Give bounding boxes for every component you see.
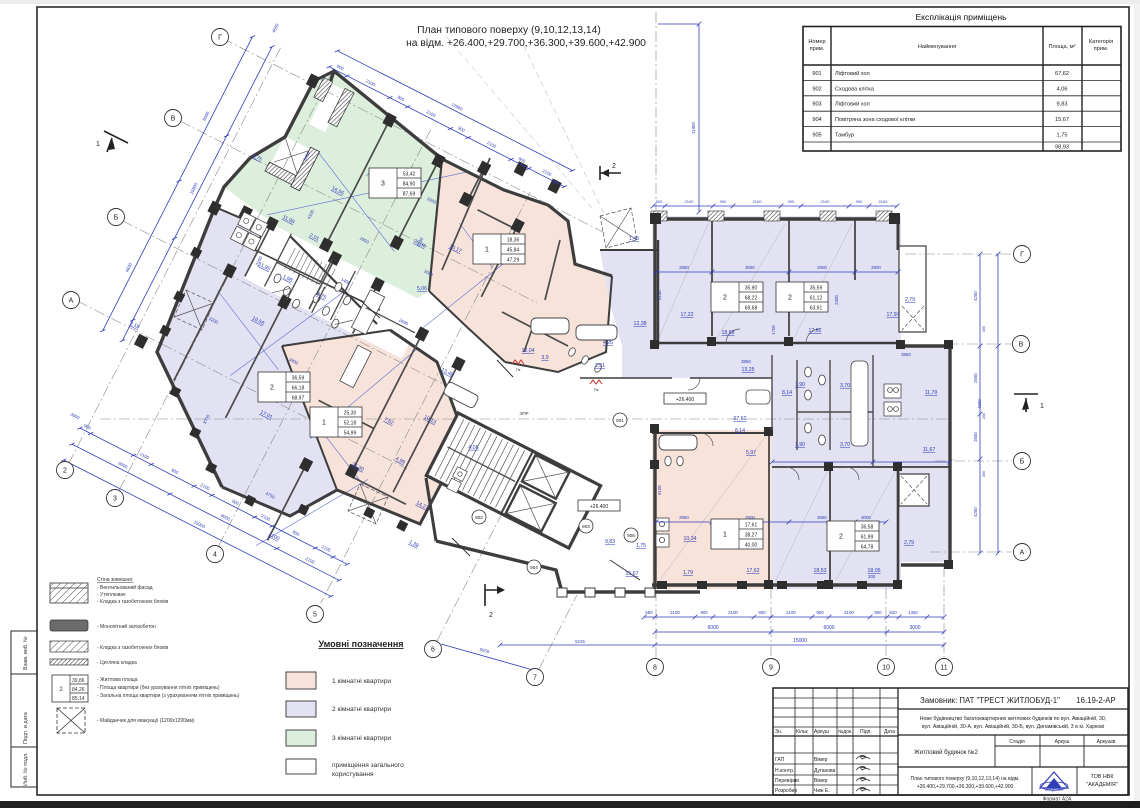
svg-text:3050: 3050 (817, 515, 827, 520)
svg-text:Аркуш: Аркуш (1055, 739, 1070, 745)
svg-text:1: 1 (485, 247, 489, 254)
svg-text:2900: 2900 (817, 265, 827, 270)
svg-text:3,70: 3,70 (840, 442, 850, 448)
svg-text:Б: Б (114, 215, 119, 222)
svg-text:Розробив: Розробив (775, 788, 797, 794)
svg-text:В: В (171, 116, 176, 123)
svg-text:10: 10 (882, 665, 890, 672)
svg-text:903: 903 (582, 524, 590, 529)
svg-text:План типового поверху (9,10,12: План типового поверху (9,10,12,13,14) (417, 25, 601, 36)
svg-text:1450: 1450 (908, 610, 918, 615)
svg-text:- Площа квартири (без урахуван: - Площа квартири (без урахування літніх … (97, 685, 220, 691)
svg-text:11,67: 11,67 (923, 447, 936, 453)
svg-text:35,90: 35,90 (745, 286, 758, 292)
svg-text:+26.400: +26.400 (676, 397, 694, 403)
svg-text:900: 900 (788, 199, 795, 204)
svg-text:2: 2 (612, 163, 616, 170)
svg-text:9,83: 9,83 (1057, 102, 1068, 108)
svg-text:9,83: 9,83 (605, 539, 615, 545)
svg-text:84,90: 84,90 (403, 182, 416, 188)
svg-text:84,26: 84,26 (72, 687, 85, 693)
svg-text:1,90: 1,90 (795, 442, 805, 448)
svg-text:Житловий будинок №2: Житловий будинок №2 (914, 749, 978, 756)
svg-text:3 кімнатні квартири: 3 кімнатні квартири (332, 734, 391, 742)
svg-text:Повітряна зона сходової клітки: Повітряна зона сходової клітки (835, 117, 915, 123)
svg-text:300: 300 (982, 326, 986, 332)
svg-text:3: 3 (113, 496, 117, 503)
svg-text:8,14: 8,14 (782, 390, 792, 396)
svg-text:900: 900 (874, 610, 882, 615)
svg-text:69,68: 69,68 (745, 306, 758, 312)
svg-text:2100: 2100 (670, 610, 680, 615)
svg-text:11,79: 11,79 (925, 390, 938, 396)
svg-text:7: 7 (533, 675, 537, 682)
svg-text:2100: 2100 (753, 199, 763, 204)
svg-text:1,75: 1,75 (1057, 133, 1068, 139)
svg-text:61,12: 61,12 (810, 296, 823, 302)
svg-text:+26.400,+29.700,+36.300,+39.60: +26.400,+29.700,+36.300,+39.600,+42.900 (917, 784, 1014, 790)
svg-text:64,78: 64,78 (861, 545, 874, 551)
svg-text:905: 905 (812, 133, 821, 139)
svg-text:18,36: 18,36 (507, 238, 520, 244)
svg-text:36,58: 36,58 (861, 525, 874, 531)
svg-text:54,99: 54,99 (344, 431, 357, 437)
svg-text:200: 200 (982, 413, 986, 419)
svg-text:40,00: 40,00 (745, 543, 758, 549)
svg-text:5: 5 (313, 612, 317, 619)
svg-text:18,68: 18,68 (722, 330, 735, 336)
svg-text:900: 900 (856, 199, 863, 204)
svg-text:Умовні позначення: Умовні позначення (318, 639, 403, 649)
svg-text:2100: 2100 (879, 199, 889, 204)
svg-text:9: 9 (769, 665, 773, 672)
svg-text:4,26: 4,26 (603, 340, 613, 346)
svg-text:Тамбур: Тамбур (835, 133, 854, 139)
svg-text:3850: 3850 (901, 352, 911, 357)
svg-text:3000: 3000 (861, 515, 871, 520)
svg-text:85,14: 85,14 (72, 696, 85, 702)
svg-text:905: 905 (627, 533, 635, 538)
svg-text:2100: 2100 (786, 610, 796, 615)
svg-text:Сходова клітка: Сходова клітка (835, 86, 875, 92)
svg-text:2: 2 (839, 534, 843, 541)
svg-text:Вімер: Вімер (814, 757, 828, 763)
svg-text:61,99: 61,99 (861, 535, 874, 541)
svg-text:вул. Авіаційній, 30-А, вул. Ав: вул. Авіаційній, 30-А, вул. Авіаційній, … (922, 723, 1104, 730)
svg-text:- Монолітний залізобетон: - Монолітний залізобетон (97, 623, 156, 630)
svg-text:87,69: 87,69 (403, 192, 416, 198)
svg-text:1: 1 (322, 420, 326, 427)
svg-text:902: 902 (475, 515, 483, 520)
svg-text:Нове будівництво багатоквартир: Нове будівництво багатоквартирних житлов… (920, 715, 1107, 722)
svg-text:3,70: 3,70 (840, 383, 850, 389)
svg-text:Аркуш: Аркуш (814, 729, 829, 735)
svg-text:620: 620 (889, 610, 897, 615)
svg-text:900: 900 (720, 199, 727, 204)
svg-text:ТОВ НВК: ТОВ НВК (1091, 774, 1115, 780)
svg-text:- Утеплювач: - Утеплювач (97, 592, 126, 598)
svg-text:6100: 6100 (657, 485, 662, 495)
svg-text:Найменування: Найменування (918, 43, 956, 50)
svg-text:5,06: 5,06 (417, 286, 427, 292)
svg-text:2,79: 2,79 (905, 297, 915, 303)
svg-text:Дуганова: Дуганова (814, 768, 836, 774)
svg-text:1: 1 (96, 141, 100, 148)
svg-text:Подп. и дата: Подп. и дата (23, 712, 29, 744)
svg-text:1: 1 (1040, 403, 1044, 410)
svg-text:А: А (1020, 550, 1025, 557)
svg-text:8: 8 (653, 665, 657, 672)
svg-text:5,97: 5,97 (746, 450, 756, 456)
svg-text:"АКАДЕМІЯ": "АКАДЕМІЯ" (1086, 782, 1118, 788)
svg-text:47,29: 47,29 (507, 258, 520, 264)
svg-text:18,53: 18,53 (814, 568, 827, 574)
svg-text:3000: 3000 (909, 625, 920, 631)
svg-text:Аркушів: Аркушів (1097, 739, 1116, 745)
svg-text:17,62: 17,62 (747, 568, 760, 574)
svg-text:53,42: 53,42 (403, 172, 416, 178)
svg-text:2650: 2650 (973, 432, 978, 442)
svg-text:1: 1 (723, 532, 727, 539)
svg-text:904: 904 (812, 117, 821, 123)
svg-text:2: 2 (489, 612, 493, 619)
svg-text:Перевірив: Перевірив (775, 778, 799, 784)
svg-text:4: 4 (213, 552, 217, 559)
svg-text:- Цегляна кладка: - Цегляна кладка (97, 660, 137, 666)
svg-text:- Кладка з газобетонних блоків: - Кладка з газобетонних блоків (97, 645, 169, 651)
svg-text:67,62: 67,62 (734, 416, 747, 422)
svg-text:38,27: 38,27 (745, 533, 758, 539)
svg-text:18,05: 18,05 (868, 568, 881, 574)
svg-text:8,14: 8,14 (735, 428, 745, 434)
svg-text:на відм. +26.400,+29.700,+36.3: на відм. +26.400,+29.700,+36.300,+39.600… (406, 38, 646, 49)
svg-text:45,84: 45,84 (507, 248, 520, 254)
svg-text:2300: 2300 (834, 295, 839, 305)
svg-text:900: 900 (816, 610, 824, 615)
svg-text:4,06: 4,06 (468, 445, 478, 451)
svg-text:12,04: 12,04 (522, 348, 535, 354)
svg-text:25,30: 25,30 (344, 411, 357, 417)
svg-text:63,91: 63,91 (810, 306, 823, 312)
svg-text:приміщення загального: приміщення загального (332, 761, 404, 769)
svg-text:35,59: 35,59 (810, 286, 823, 292)
svg-text:Ліфтовий хол: Ліфтовий хол (835, 101, 870, 108)
svg-text:36,59: 36,59 (292, 376, 305, 382)
svg-text:- Кладка з газобетонних блоків: - Кладка з газобетонних блоків (97, 599, 169, 605)
svg-text:2950: 2950 (679, 515, 689, 520)
svg-text:2: 2 (788, 295, 792, 302)
svg-text:Стіна зовнішня:: Стіна зовнішня: (97, 577, 133, 583)
svg-text:68,97: 68,97 (292, 396, 305, 402)
svg-text:2: 2 (63, 468, 67, 475)
svg-text:6000: 6000 (823, 625, 834, 631)
svg-text:5215: 5215 (575, 639, 585, 644)
svg-text:2100: 2100 (685, 199, 695, 204)
svg-text:користування: користування (332, 771, 374, 778)
svg-text:2,79: 2,79 (904, 540, 914, 546)
svg-text:Кільк: Кільк (796, 729, 809, 735)
svg-text:План типового поверху (9,10,12: План типового поверху (9,10,12,13,14) на… (910, 776, 1019, 782)
svg-text:300: 300 (982, 471, 986, 477)
svg-text:17,61: 17,61 (745, 523, 758, 529)
svg-text:17,62: 17,62 (809, 328, 822, 334)
svg-text:ЭПР: ЭПР (519, 411, 528, 416)
svg-text:4250: 4250 (973, 291, 978, 301)
svg-text:15,67: 15,67 (626, 571, 639, 577)
svg-text:2850: 2850 (679, 265, 689, 270)
svg-text:3850: 3850 (741, 359, 751, 364)
svg-text:16.19-2-АР: 16.19-2-АР (1076, 696, 1115, 705)
svg-text:4800: 4800 (977, 399, 982, 409)
svg-text:4,06: 4,06 (1057, 86, 1068, 92)
svg-text:Номер: Номер (808, 39, 825, 45)
svg-text:1,46: 1,46 (629, 236, 639, 242)
svg-text:15000: 15000 (793, 638, 807, 644)
svg-text:2,51: 2,51 (595, 363, 605, 369)
svg-text:Зн.: Зн. (775, 729, 782, 735)
svg-text:Г: Г (218, 35, 222, 42)
svg-text:900: 900 (656, 199, 663, 204)
svg-text:3,9: 3,9 (541, 355, 548, 361)
svg-text:Б: Б (1020, 459, 1025, 466)
svg-text:Н.контр.: Н.контр. (775, 768, 794, 774)
svg-text:900: 900 (700, 610, 708, 615)
svg-text:1 кімнатні квартири: 1 кімнатні квартири (332, 677, 391, 685)
svg-text:903: 903 (812, 102, 821, 108)
svg-text:2100: 2100 (821, 199, 831, 204)
svg-text:Формат А2А: Формат А2А (1043, 797, 1072, 803)
svg-text:39,86: 39,86 (72, 678, 85, 684)
svg-text:901: 901 (812, 71, 821, 77)
svg-text:2650: 2650 (973, 373, 978, 383)
svg-text:прим.: прим. (1094, 46, 1109, 52)
svg-text:67,62: 67,62 (1055, 71, 1069, 77)
svg-text:Пк: Пк (516, 367, 521, 372)
svg-text:15,67: 15,67 (1055, 117, 1069, 123)
svg-text:11: 11 (940, 665, 947, 672)
svg-text:Дата: Дата (884, 729, 895, 735)
svg-text:Категорія: Категорія (1089, 39, 1113, 45)
svg-text:В: В (1019, 342, 1024, 349)
svg-text:Площа, м²: Площа, м² (1049, 44, 1076, 50)
svg-text:2: 2 (723, 295, 727, 302)
svg-text:902: 902 (812, 86, 821, 92)
svg-text:ГАП: ГАП (775, 757, 785, 763)
svg-text:300: 300 (868, 574, 876, 579)
svg-text:- Вентильований фасад: - Вентильований фасад (97, 584, 153, 591)
svg-text:+26.400: +26.400 (590, 504, 608, 510)
svg-text:А: А (69, 298, 74, 305)
svg-text:550: 550 (645, 610, 653, 615)
svg-text:6150: 6150 (657, 290, 662, 300)
svg-text:2 кімнатні квартири: 2 кімнатні квартири (332, 705, 391, 713)
svg-text:- Загальна площа квартири (з у: - Загальна площа квартири (з урахуванням… (97, 693, 240, 699)
svg-text:- Житлова площа: - Житлова площа (97, 677, 138, 683)
svg-text:Замовник: ПАТ "ТРЕСТ ЖИТЛОБУД-: Замовник: ПАТ "ТРЕСТ ЖИТЛОБУД-1" (920, 696, 1060, 705)
svg-text:900: 900 (758, 610, 766, 615)
svg-text:- Майданчик для евакуації (120: - Майданчик для евакуації (1200х1200мм) (97, 717, 195, 724)
svg-text:Пк: Пк (594, 387, 599, 392)
svg-text:904: 904 (530, 565, 538, 570)
svg-text:1,90: 1,90 (795, 382, 805, 388)
svg-text:98,93: 98,93 (1055, 145, 1069, 151)
svg-text:3: 3 (381, 181, 385, 188)
svg-text:17,97: 17,97 (887, 312, 900, 318)
svg-text:2900: 2900 (871, 265, 881, 270)
svg-text:Г: Г (1020, 252, 1024, 259)
svg-text:Взам. инб. №: Взам. инб. № (23, 636, 29, 670)
svg-text:Чиж Е.: Чиж Е. (814, 788, 830, 794)
svg-text:2100: 2100 (844, 610, 854, 615)
svg-text:12,38: 12,38 (634, 321, 647, 327)
svg-text:4250: 4250 (973, 507, 978, 517)
svg-text:901: 901 (616, 418, 624, 423)
svg-text:1,79: 1,79 (683, 570, 693, 576)
svg-text:2: 2 (270, 385, 274, 392)
svg-text:6000: 6000 (707, 625, 718, 631)
svg-text:прим.: прим. (810, 46, 825, 52)
svg-text:13,25: 13,25 (742, 367, 755, 373)
svg-text:Вімер: Вімер (814, 778, 828, 784)
svg-text:1700: 1700 (771, 325, 776, 335)
svg-text:Ліфтовий хол: Ліфтовий хол (835, 70, 870, 77)
svg-text:Підп.: Підп. (860, 729, 872, 735)
svg-text:2100: 2100 (728, 610, 738, 615)
svg-text:10,34: 10,34 (684, 536, 697, 542)
svg-text:6: 6 (431, 647, 435, 654)
svg-text:Инб. № подл.: Инб. № подл. (23, 752, 29, 786)
svg-text:№док.: №док. (838, 729, 853, 735)
svg-text:Експлікація приміщень: Експлікація приміщень (915, 12, 1007, 22)
svg-text:52,18: 52,18 (344, 421, 357, 427)
svg-text:1,75: 1,75 (636, 543, 646, 549)
svg-text:3090: 3090 (745, 265, 755, 270)
svg-text:АКАДЕМІЯ: АКАДЕМІЯ (1045, 788, 1063, 792)
svg-text:68,22: 68,22 (745, 296, 758, 302)
svg-text:66,18: 66,18 (292, 386, 305, 392)
svg-text:17,22: 17,22 (681, 312, 694, 318)
svg-text:Стадія: Стадія (1009, 739, 1025, 745)
svg-text:11900: 11900 (691, 122, 696, 134)
